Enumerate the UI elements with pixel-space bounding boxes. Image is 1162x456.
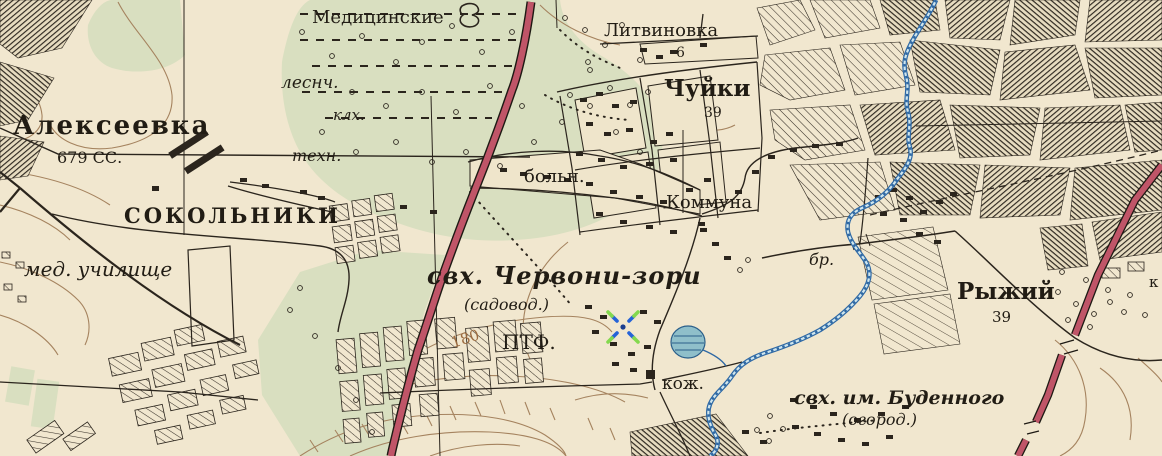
label-alekseevka: Алексеевка	[13, 111, 210, 141]
label-ogorod: (огород.)	[842, 410, 917, 429]
label-k-partial: к	[1149, 273, 1159, 291]
label-chuyki-height: 39	[704, 105, 722, 121]
map-screenshot: Медицинские Литвиновка 6 Чуйки 39 Алексе…	[0, 0, 1162, 456]
label-kozh: кож.	[662, 374, 704, 394]
label-point-679: 679 СС.	[57, 148, 122, 167]
label-chuyki: Чуйки	[664, 75, 750, 102]
label-med-school: мед. училище	[24, 257, 172, 281]
label-litvinovka: Литвиновка	[604, 20, 718, 41]
label-litvinovka-height: 6	[676, 45, 685, 61]
label-sovkhoz-chervoni-zori: свх. Червони-зори	[427, 261, 702, 290]
label-ryzhiy-height: 39	[992, 308, 1011, 326]
label-technical: техн.	[292, 146, 341, 165]
label-kommuna: Коммуна	[666, 192, 752, 213]
topographic-map[interactable]: Медицинские Литвиновка 6 Чуйки 39 Алексе…	[0, 0, 1162, 456]
label-medical-institutes: Медицинские	[312, 7, 444, 28]
label-sovkhoz-budennogo: свх. им. Буденного	[794, 387, 1005, 409]
label-sokolniki: СОКОЛЬНИКИ	[124, 203, 341, 228]
label-hospital: больн.	[524, 166, 585, 187]
label-ryzhiy: Рыжий	[957, 278, 1055, 305]
label-sadovod: (садовод.)	[464, 295, 549, 314]
label-ptf: ПТФ.	[502, 330, 556, 354]
label-kolkhoz: клх.	[333, 106, 365, 124]
label-bridge: бр.	[809, 250, 834, 269]
label-forest-nursery: леснч.	[281, 73, 339, 93]
pond	[671, 326, 705, 358]
